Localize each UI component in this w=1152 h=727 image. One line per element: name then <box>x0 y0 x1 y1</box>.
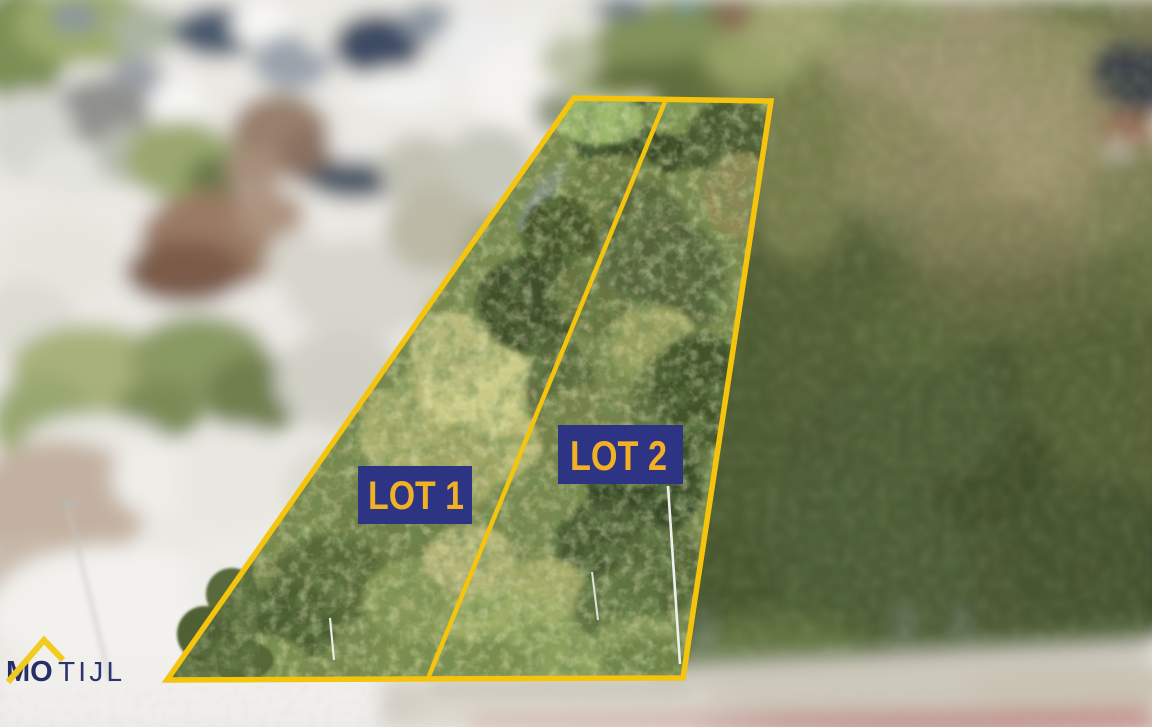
svg-text:LOT 2: LOT 2 <box>570 432 667 479</box>
svg-text:LOT 1: LOT 1 <box>368 474 464 518</box>
svg-text:TIJL: TIJL <box>58 656 125 687</box>
